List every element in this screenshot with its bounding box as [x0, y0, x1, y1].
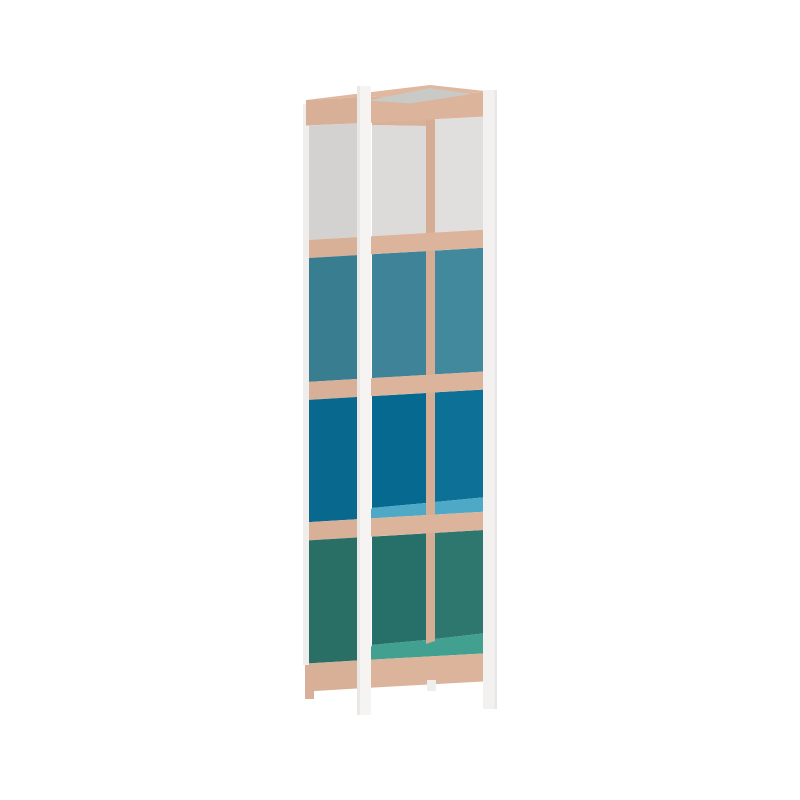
shelving-unit-render [0, 0, 800, 800]
compartment2-right-panel [435, 248, 487, 375]
left-shelf-band-3 [309, 519, 365, 541]
compartment4-back-panel [372, 533, 426, 645]
front-right-post-shade [495, 90, 498, 709]
back-right-leg [427, 680, 436, 691]
compartment4-right-panel [435, 530, 487, 639]
left-side-panel-1 [309, 123, 365, 240]
compartment3-right-panel [435, 389, 487, 502]
left-side-panel-4 [309, 537, 365, 663]
compartment3-back-panel [372, 393, 426, 508]
left-shelf-band-2 [309, 379, 365, 400]
product-image-stage [0, 0, 800, 800]
top-frame-left-band [306, 97, 365, 126]
left-side-panel-3 [309, 397, 365, 523]
compartment1-right-panel [435, 116, 487, 232]
left-bottom-rail [309, 660, 365, 691]
compartment1-back-panel [372, 125, 426, 236]
left-shelf-band-1 [309, 237, 365, 258]
back-right-post [426, 86, 435, 644]
left-side-panel-2 [309, 255, 365, 382]
front-left-post-shade [357, 86, 360, 715]
compartment2-back-panel [372, 251, 426, 378]
